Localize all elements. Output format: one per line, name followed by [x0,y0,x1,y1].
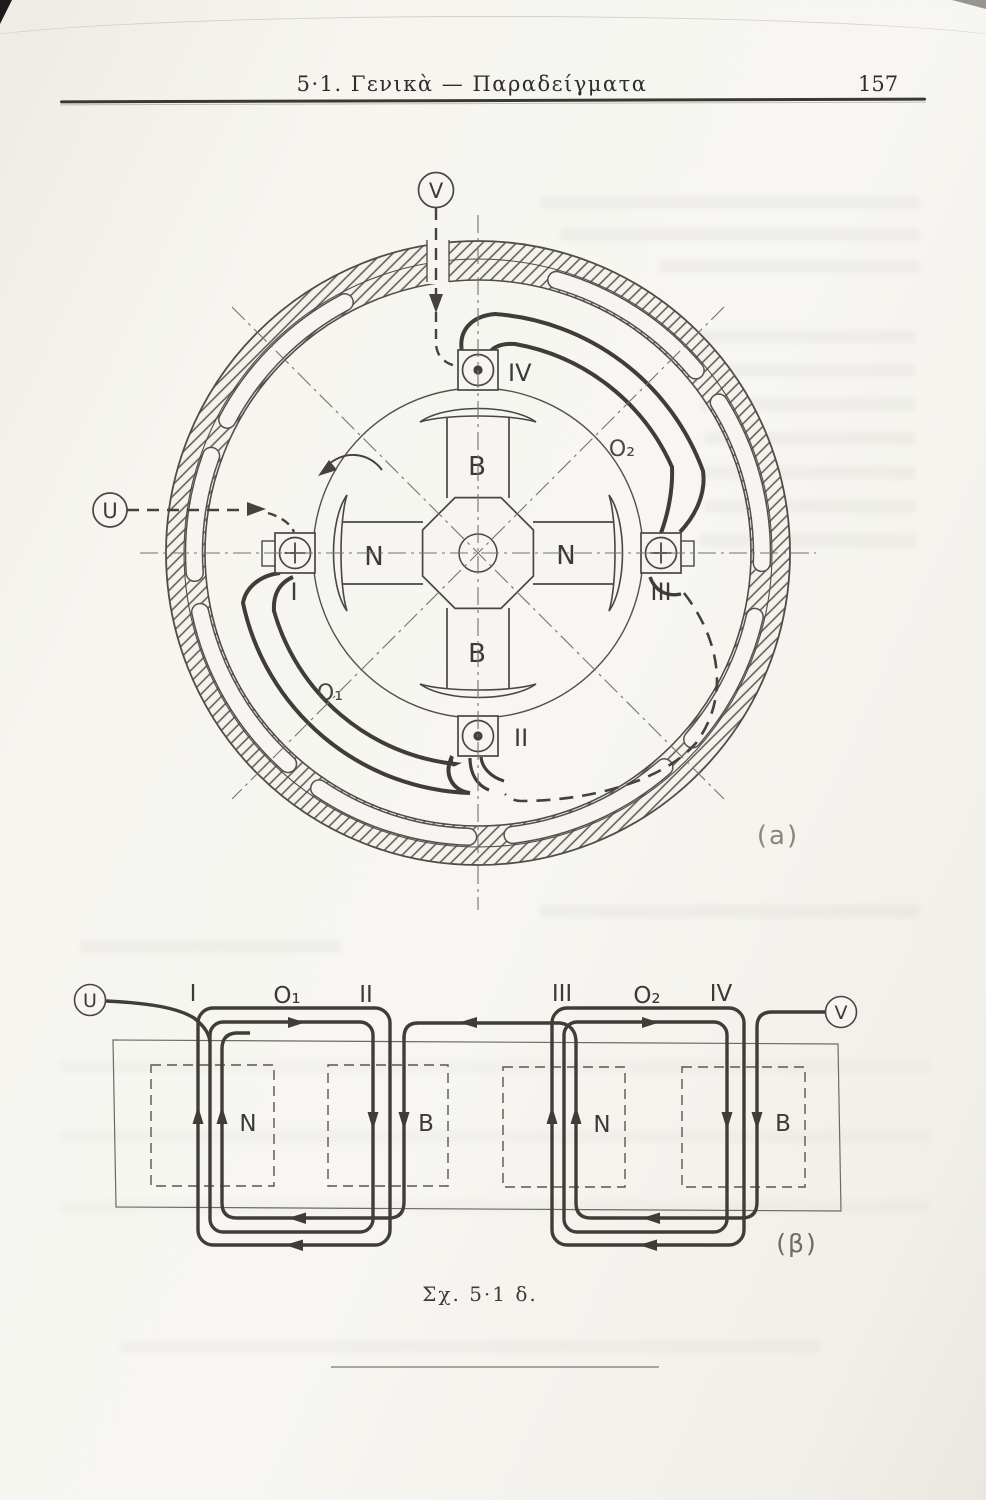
v-lead-entry-notch [427,238,449,284]
v-lead-arrowhead [429,294,443,313]
u-lead-arrowhead [247,502,266,516]
coil-label-IV: IV [508,359,532,387]
pole-label-bottom: B [468,639,486,669]
u-lead-wire [106,1001,210,1042]
terminal-label-v-b: V [835,1002,848,1024]
rotation-direction-arrow [318,455,382,476]
b-label-III: III [552,981,572,1007]
connection-label-O2: O₂ [609,437,635,462]
pole-label-top: B [468,452,486,482]
b-pole-N1: N [239,1111,256,1137]
b-label-I: I [190,981,197,1007]
figure-a-sublabel: (a) [757,821,799,851]
b-label-O2: O₂ [633,983,660,1009]
terminal-label-v: V [429,179,444,203]
pole-label-left: N [364,542,383,572]
b-pole-B2: B [775,1111,791,1137]
b-label-O1: O₁ [273,983,300,1009]
pole-label-right: N [556,541,575,571]
b-pole-B1: B [418,1111,434,1137]
figure-caption: Σχ. 5·1 δ. [340,1282,620,1306]
figure-b-developed-winding: U V I O₁ II III O₂ IV N B N B (β) [75,981,857,1258]
coil-label-I: I [290,578,297,606]
figure-b-sublabel: (β) [776,1229,817,1258]
coil-label-III: III [650,578,671,606]
b-pole-N2: N [593,1112,610,1138]
b-label-IV: IV [710,981,733,1007]
figure-canvas: B B N N I II III IV O₁ O₂ U V (a) [0,0,986,1500]
connection-label-O1: O₁ [317,681,343,706]
terminal-label-u-b: U [83,990,97,1012]
coil-label-II: II [514,724,528,752]
terminal-label-u: U [102,499,117,523]
b-label-II: II [359,982,373,1008]
current-arrows [193,1017,763,1251]
figure-a-stator-cross-section: B B N N I II III IV O₁ O₂ U V (a) [93,173,816,911]
centerlines [140,215,816,910]
